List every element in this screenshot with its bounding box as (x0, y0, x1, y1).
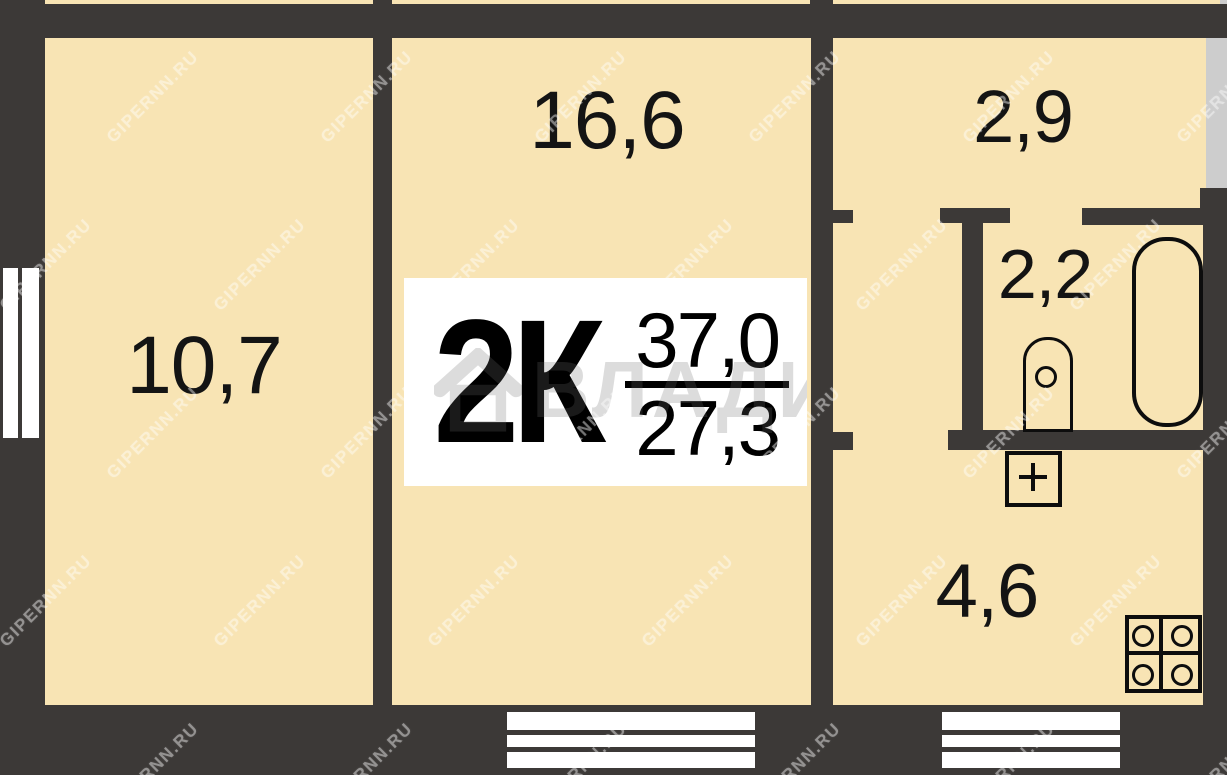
wall-bedroom-living-lower (373, 382, 392, 705)
window-living-pane (507, 712, 755, 730)
site-watermark-text: GIPERNN.RU (745, 719, 845, 775)
site-watermark-text: GIPERNN.RU (1173, 719, 1227, 775)
wall-bathroom-bottom (948, 430, 1203, 450)
living-area-value: 27,3 (635, 391, 779, 465)
wall-living-hall-lower (811, 450, 833, 705)
window-left-pane (3, 268, 18, 438)
room-area-label-kitchen: 4,6 (936, 554, 1039, 630)
window-living-pane (507, 735, 755, 747)
outside-area (1220, 0, 1227, 4)
area-fraction: 37,0 27,3 (625, 303, 789, 464)
adjacent-room-strip (833, 0, 1220, 4)
wall-bedroom-living-upper (373, 0, 392, 243)
outside-area (1206, 38, 1227, 188)
wall-right-step (1200, 188, 1227, 218)
room-area-label-bedroom: 10,7 (126, 325, 282, 407)
stove-burner-icon (1132, 664, 1154, 686)
stove-burner-icon (1171, 625, 1193, 647)
plan-summary-badge: ВЛАДИС 2К 37,0 27,3 (404, 278, 807, 486)
site-watermark-text: GIPERNN.RU (103, 719, 203, 775)
stove-burner-icon (1171, 664, 1193, 686)
wall-bathroom-left-top (940, 208, 1010, 223)
window-kitchen-pane (942, 712, 1120, 730)
toilet-flush-icon (1035, 366, 1057, 388)
adjacent-room-strip (45, 0, 373, 4)
stove-burner-icon (1132, 625, 1154, 647)
total-area-value: 37,0 (635, 303, 779, 377)
apartment-type-label: 2К (433, 312, 598, 453)
bathtub-icon (1132, 237, 1203, 427)
wall-living-hall-jamb-top (811, 210, 853, 223)
window-kitchen-pane (942, 735, 1120, 747)
wall-living-hall-upper (811, 0, 833, 210)
sink-cross-icon (1031, 463, 1035, 491)
window-living-pane (507, 752, 755, 768)
window-kitchen-pane (942, 752, 1120, 768)
room-area-label-bathroom: 2,2 (998, 239, 1092, 309)
adjacent-room-strip (392, 0, 810, 4)
site-watermark-text: GIPERNN.RU (317, 719, 417, 775)
stove-grid-line (1127, 651, 1200, 655)
room-area-label-hallway: 2,9 (973, 80, 1073, 154)
wall-bathroom-left (962, 223, 983, 432)
room-area-label-living: 16,6 (529, 80, 685, 162)
floor-plan: 10,7 16,6 2,9 2,2 4,6 ВЛАДИС 2К 37,0 27,… (0, 0, 1227, 775)
wall-bathroom-top (1082, 208, 1203, 225)
window-left-pane (22, 268, 39, 438)
wall-living-hall-jamb-bottom (811, 432, 853, 450)
